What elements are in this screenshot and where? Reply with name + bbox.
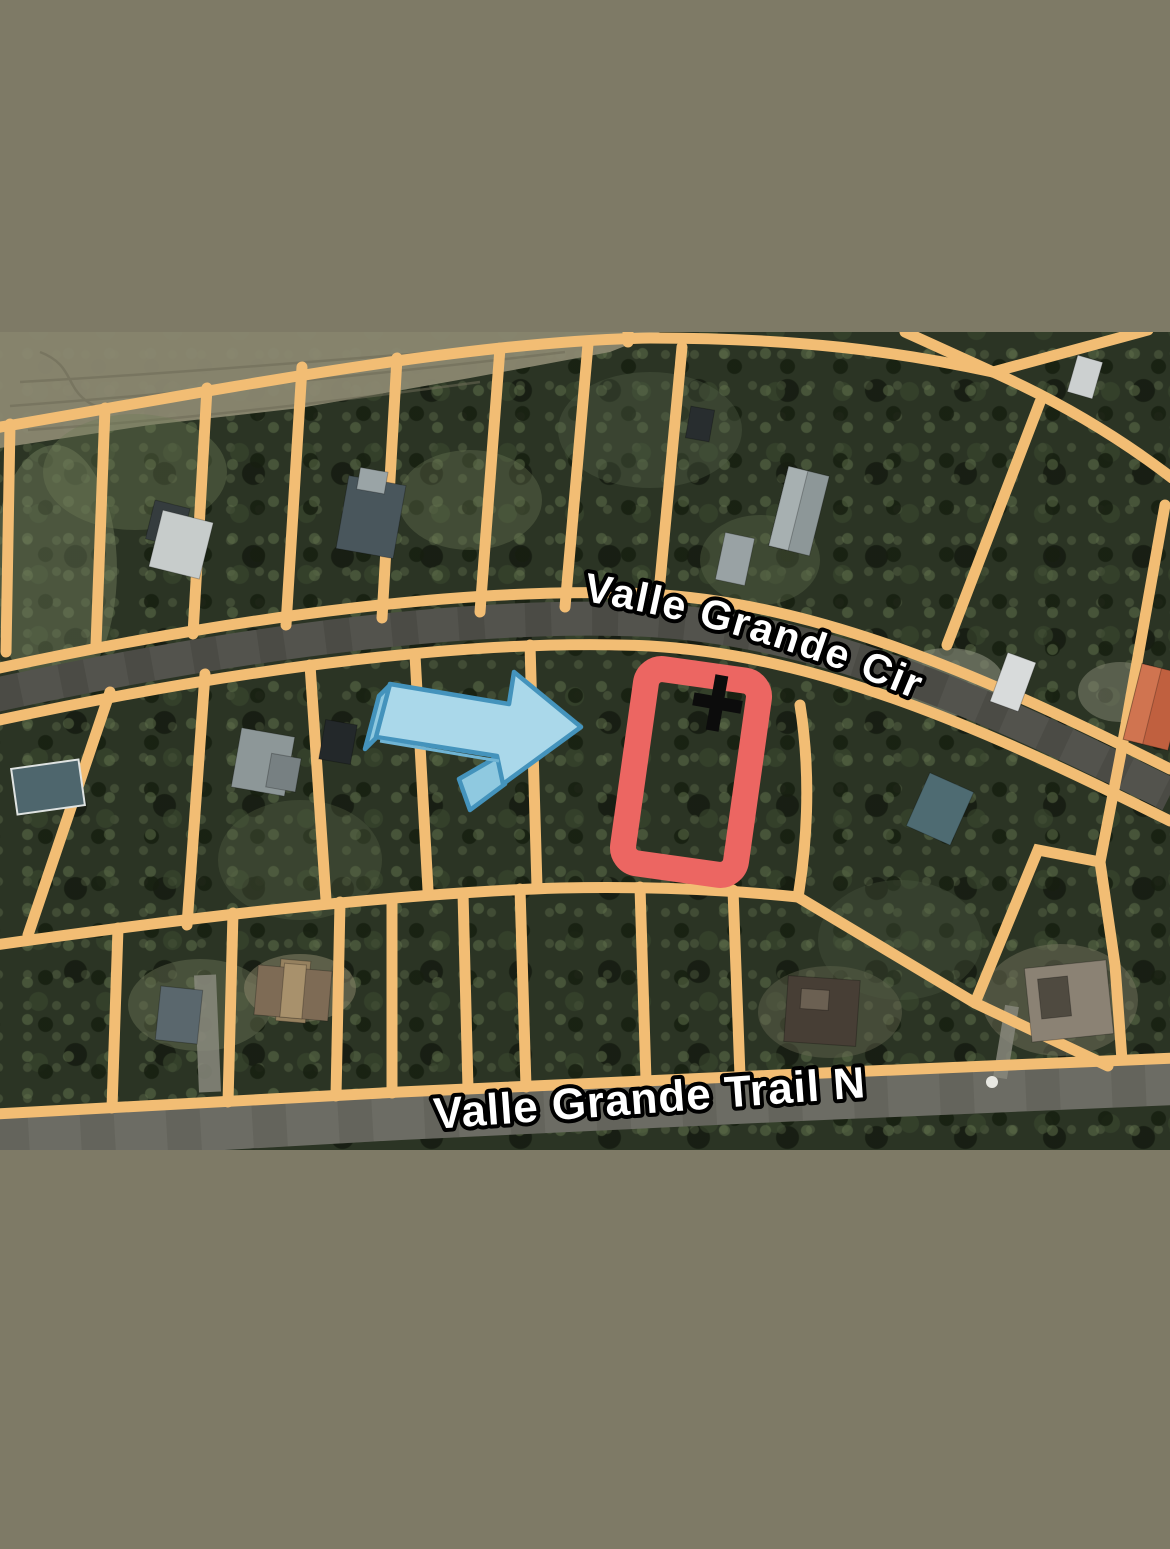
house — [231, 728, 304, 798]
letterbox-top — [0, 0, 1170, 332]
shed — [685, 406, 714, 442]
house — [11, 759, 85, 814]
screenshot-root: Valle Grande Cir Valle Grande Trail N — [0, 0, 1170, 1549]
car-dot — [986, 1076, 998, 1088]
letterbox-bottom — [0, 1150, 1170, 1549]
house — [319, 720, 357, 765]
house — [155, 986, 202, 1044]
house — [906, 773, 973, 846]
house — [1067, 355, 1102, 399]
house — [769, 466, 830, 556]
satellite-map-canvas[interactable]: Valle Grande Cir Valle Grande Trail N — [0, 332, 1170, 1150]
house — [784, 976, 860, 1047]
house — [1024, 960, 1113, 1042]
pointer-arrow — [365, 672, 581, 810]
highlighted-parcel-outline — [621, 667, 761, 877]
house — [336, 466, 408, 559]
